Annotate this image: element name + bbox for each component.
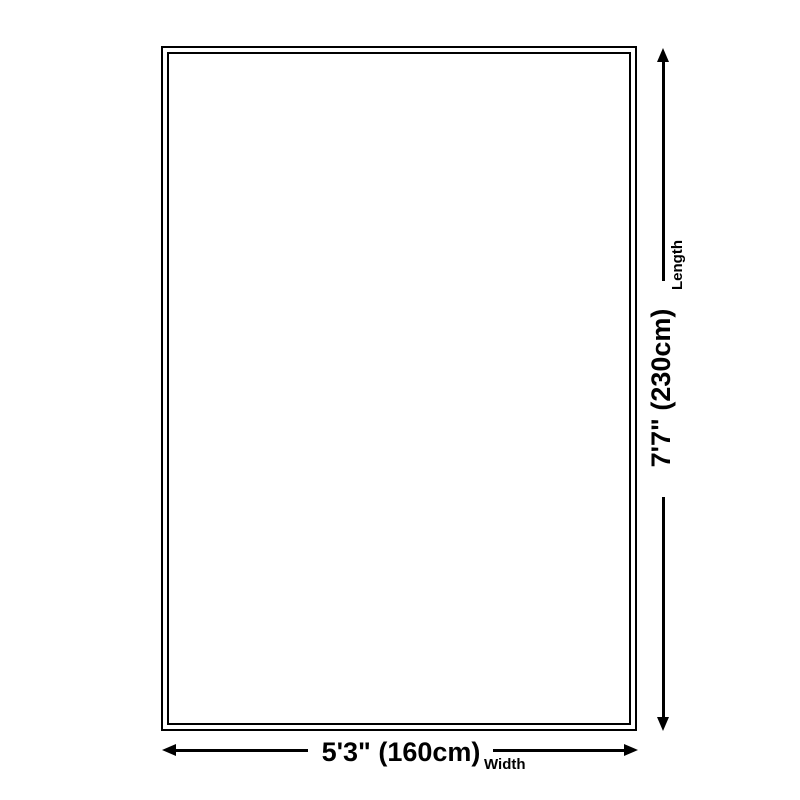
arrow-up-icon (657, 48, 669, 62)
arrow-left-icon (162, 744, 176, 756)
rug-outline (161, 46, 637, 731)
width-value-label: 5'3" (160cm) (301, 737, 501, 767)
length-arrow-line-bottom (662, 497, 665, 717)
rug-outline-inner (167, 52, 631, 725)
arrow-right-icon (624, 744, 638, 756)
width-arrow-line-left (176, 749, 308, 752)
width-axis-label: Width (484, 756, 526, 774)
length-value-label: 7'7" (230cm) (646, 288, 676, 488)
size-diagram: Length 7'7" (230cm) 5'3" (160cm) Width (0, 0, 800, 800)
length-arrow-line-top (662, 61, 665, 281)
width-arrow-line-right (493, 749, 626, 752)
arrow-down-icon (657, 717, 669, 731)
